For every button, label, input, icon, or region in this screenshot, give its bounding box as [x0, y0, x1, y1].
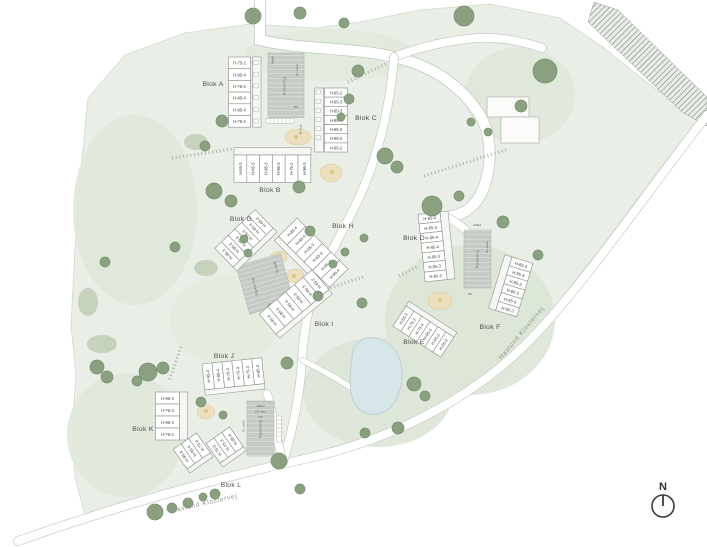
unit-label: H-95-3: [276, 162, 281, 175]
unit-label: H-75-2: [233, 119, 246, 124]
block-title: Blok J: [214, 353, 234, 360]
unit-label: H-75-2: [233, 61, 246, 66]
block-title: Blok B: [259, 187, 281, 194]
hc-bus-label: HC-bus: [299, 124, 303, 135]
north-label: N: [659, 481, 667, 493]
unit-label: H-75-2: [161, 432, 174, 437]
parking-label: Parkering: [283, 77, 287, 95]
site-plan: Parkering EL-tavle Affald HC HC-bus Park…: [0, 0, 707, 547]
building-blok-k: H-95-4 H-75-3 H-95-4 H-75-2: [156, 392, 188, 440]
unit-label: H-95-3: [302, 162, 307, 175]
parking-east: Parkering Affald EL-tavle HC: [464, 223, 491, 296]
unit-label: H-65-3: [238, 162, 243, 175]
hc-label: HC: [294, 105, 299, 109]
unit-label: H-85-4: [233, 96, 246, 101]
unit-label: H-65-2: [330, 136, 343, 141]
el-tavle-label: EL-tavle: [242, 420, 246, 432]
block-title: Blok K: [132, 426, 154, 433]
hc-label: HC: [468, 292, 473, 296]
pond: [350, 338, 402, 415]
unit-label: H-65-2: [330, 90, 343, 95]
block-title: Blok D: [403, 235, 425, 242]
unit-label: H-65-2: [330, 145, 343, 150]
block-title: Blok E: [403, 339, 425, 346]
building-blok-b: H-65-3 H-65-3 H-95-3 H-95-3 H-75-2 H-95-…: [234, 148, 311, 183]
parking-label: Parkering: [476, 250, 480, 268]
parking-label: Parkering: [259, 420, 263, 438]
unit-label: H-75-2: [289, 162, 294, 175]
waste-label: Affald: [257, 404, 265, 408]
waste-label: Affald: [271, 56, 275, 64]
block-title: Blok F: [479, 324, 500, 331]
building-blok-j: H-95-4 H-95-4 H-75-3 H-75-3 H-75-3 H-85-…: [202, 358, 265, 396]
unit-label: H-65-3: [251, 162, 256, 175]
building-blok-a: H-75-2 H-95-4 H-75-2 H-85-4 H-95-4 H-75-…: [229, 57, 262, 127]
hc-bus-label: HC-bus: [255, 410, 266, 414]
el-tavle-label: EL-tavle: [295, 64, 299, 76]
unit-label: H-95-4: [161, 420, 174, 425]
unit-label: H-75-3: [161, 408, 174, 413]
unit-label: H-95-4: [233, 72, 246, 77]
unit-label: H-95-4: [161, 396, 174, 401]
unit-label: H-65-2: [330, 127, 343, 132]
hc-label: HC: [258, 415, 263, 419]
unit-label: H-75-2: [233, 84, 246, 89]
block-title: Blok I: [315, 321, 334, 328]
block-title: Blok L: [221, 482, 242, 489]
el-tavle-label: EL-tavle: [485, 241, 489, 253]
block-title: Blok A: [202, 81, 223, 88]
site-plan-canvas: Parkering EL-tavle Affald HC HC-bus Park…: [0, 0, 707, 547]
unit-label: H-95-4: [233, 107, 246, 112]
north-arrow: N: [652, 481, 674, 517]
block-title: Blok H: [332, 223, 354, 230]
unit-label: H-95-3: [263, 162, 268, 175]
waste-label: Affald: [473, 223, 481, 227]
block-title: Blok C: [355, 115, 377, 122]
unit-label: H-65-3: [330, 100, 343, 105]
block-title: Blok G: [230, 216, 252, 223]
